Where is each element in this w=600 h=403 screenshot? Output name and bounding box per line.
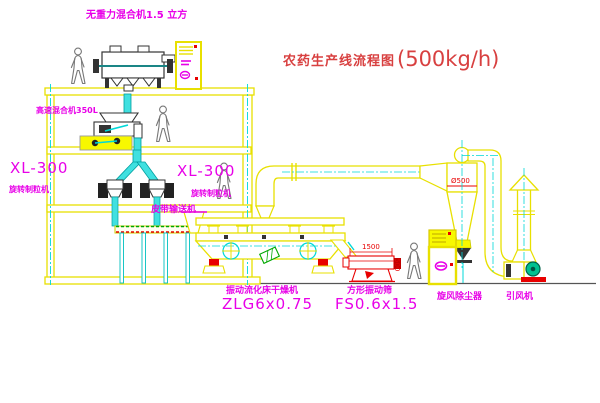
- label-belt-conveyor: 皮带输送机: [151, 206, 196, 215]
- label-granulator-left-name: 旋转制粒机: [9, 186, 49, 194]
- y-split-chute: [112, 150, 161, 184]
- label-sieve-model: FS0.6x1.5: [335, 297, 418, 312]
- label-high-speed-mixer: 高速混合机350L: [36, 107, 98, 115]
- spring-support: [203, 259, 225, 273]
- dim-sieve-length: 1500: [362, 244, 380, 251]
- label-granulator-right-model: XL-300: [177, 164, 235, 179]
- granulator-unit: [140, 180, 174, 226]
- exhaust-duct: [256, 163, 447, 218]
- label-fan: 引风机: [506, 293, 533, 302]
- flow-diagram: 农药生产线流程图 (500kg/h) 无重力混合机1.5 立方 高速混合机350…: [0, 0, 600, 403]
- label-cyclone: 旋风除尘器: [437, 293, 482, 302]
- label-dryer-model: ZLG6x0.75: [222, 297, 313, 312]
- dim-sieve-width: 500: [393, 258, 400, 271]
- gravity-free-mixer: [93, 46, 175, 91]
- fluid-bed-dryer: [196, 218, 357, 273]
- belt-conveyor: [115, 226, 198, 283]
- title-capacity: (500kg/h): [397, 47, 499, 71]
- drawing-title: 农药生产线流程图 (500kg/h): [283, 47, 499, 71]
- control-cabinet: [176, 42, 201, 89]
- worker-icon: [156, 106, 170, 141]
- rotary-granulators: [98, 180, 174, 226]
- worker-icon: [407, 243, 421, 278]
- exhaust-stack: [510, 168, 538, 266]
- label-granulator-left-model: XL-300: [10, 161, 68, 176]
- dim-cyclone-diameter: Ø500: [451, 178, 470, 185]
- label-gravity-free-mixer: 无重力混合机1.5 立方: [86, 11, 187, 21]
- label-granulator-right-name: 旋转制粒机: [191, 190, 231, 198]
- dryer-stubs: [207, 225, 335, 233]
- control-cabinet: [429, 230, 456, 284]
- high-speed-mixer: [80, 94, 142, 152]
- worker-icon: [71, 48, 85, 83]
- induced-draft-fan: [504, 262, 546, 282]
- title-text: 农药生产线流程图: [283, 50, 395, 69]
- granulator-unit: [98, 180, 132, 226]
- spring-support: [312, 259, 334, 273]
